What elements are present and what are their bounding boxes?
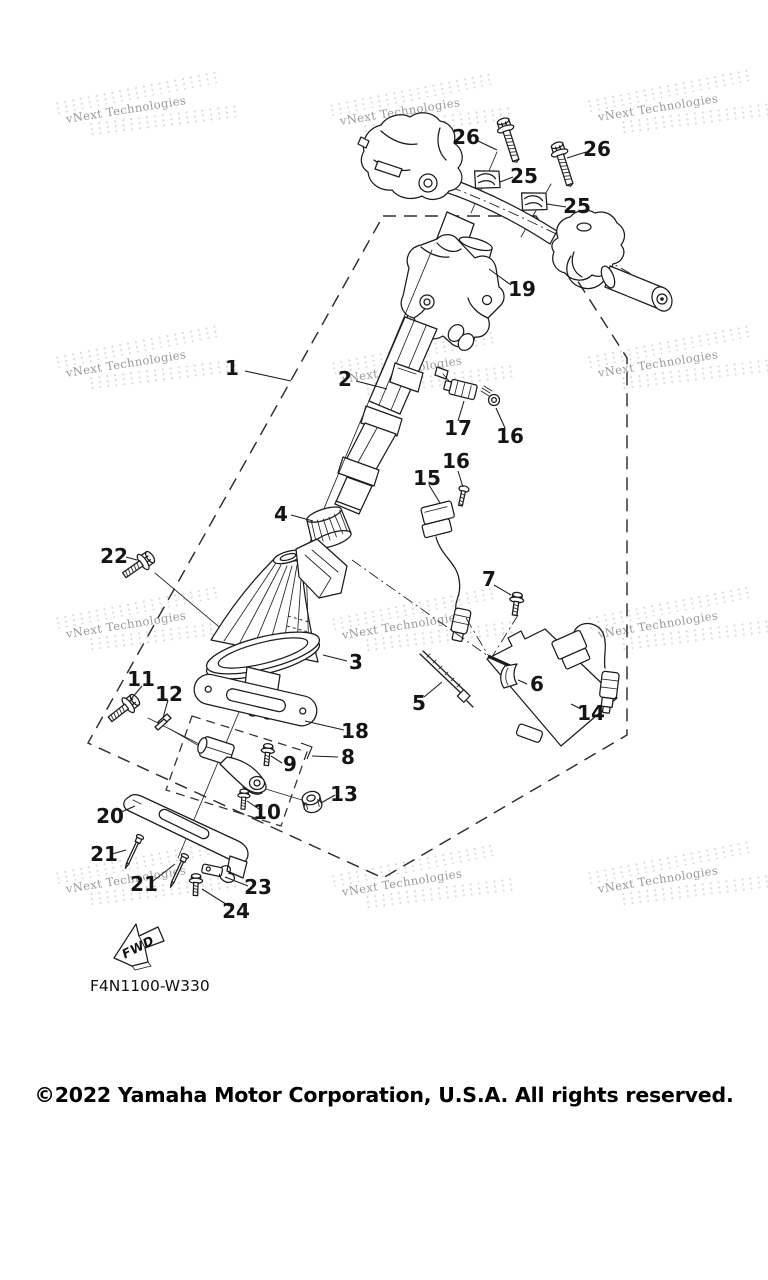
bolt-10 (237, 789, 251, 810)
bolt-11 (105, 691, 143, 726)
fwd-arrow: FWD (114, 924, 164, 970)
bolt-26-right (548, 140, 578, 189)
callout-16-mid: 16 (442, 449, 470, 473)
clip-6 (501, 664, 517, 688)
bolt-24 (189, 873, 203, 895)
callout-3: 3 (349, 650, 363, 674)
box-8-bracket (301, 743, 312, 759)
callout-17: 17 (444, 416, 472, 440)
callout-22: 22 (100, 544, 128, 568)
sensor15-axis (466, 618, 488, 655)
callout-6: 6 (530, 672, 544, 696)
handlebar-grip (599, 264, 676, 314)
steering-arm-assembly (195, 735, 266, 794)
callout-21-lower: 21 (130, 872, 158, 896)
screw-7 (508, 592, 525, 617)
cable-tie-5 (420, 651, 473, 707)
callout-4: 4 (274, 502, 288, 526)
callout-12: 12 (155, 682, 183, 706)
callout-26-left: 26 (452, 125, 480, 149)
connector-17 (435, 367, 478, 400)
callout-9: 9 (283, 752, 297, 776)
callout-18: 18 (341, 719, 369, 743)
part-code: F4N1100-W330 (90, 977, 210, 995)
left-control-housing (358, 113, 462, 200)
dashed-border (88, 216, 627, 878)
callout-25-upper: 25 (510, 164, 538, 188)
clamp-25-lower (519, 189, 550, 215)
callout-11: 11 (127, 667, 155, 691)
nut-13 (301, 790, 324, 815)
callout-13: 13 (330, 782, 358, 806)
callout-10: 10 (253, 800, 281, 824)
callout-23: 23 (244, 875, 272, 899)
bolt-9 (260, 743, 275, 766)
pin-21-upper (122, 834, 144, 870)
screw-16-mid (456, 485, 470, 507)
callout-20: 20 (96, 804, 124, 828)
callout-24: 24 (222, 899, 250, 923)
copyright-line: ©2022 Yamaha Motor Corporation, U.S.A. A… (0, 1083, 768, 1107)
callout-16-upper: 16 (496, 424, 524, 448)
callout-25-lower: 25 (563, 194, 591, 218)
screw-16-upper (481, 386, 500, 406)
sensor-15 (418, 501, 472, 643)
callout-14: 14 (577, 701, 605, 725)
bolt-26-left (494, 116, 524, 165)
callout-7: 7 (482, 567, 496, 591)
callout-26-right: 26 (583, 137, 611, 161)
callout-1: 1 (225, 356, 239, 380)
callout-15: 15 (413, 466, 441, 490)
callout-8: 8 (341, 745, 355, 769)
clamp-25-upper (472, 167, 503, 193)
callout-19: 19 (508, 277, 536, 301)
callout-5: 5 (412, 691, 426, 715)
callout-21-upper: 21 (90, 842, 118, 866)
parts-diagram-page: vNext Technologies vNext Technologies vN… (0, 0, 768, 1280)
screw7-axis (492, 615, 518, 657)
callout-2: 2 (338, 367, 352, 391)
